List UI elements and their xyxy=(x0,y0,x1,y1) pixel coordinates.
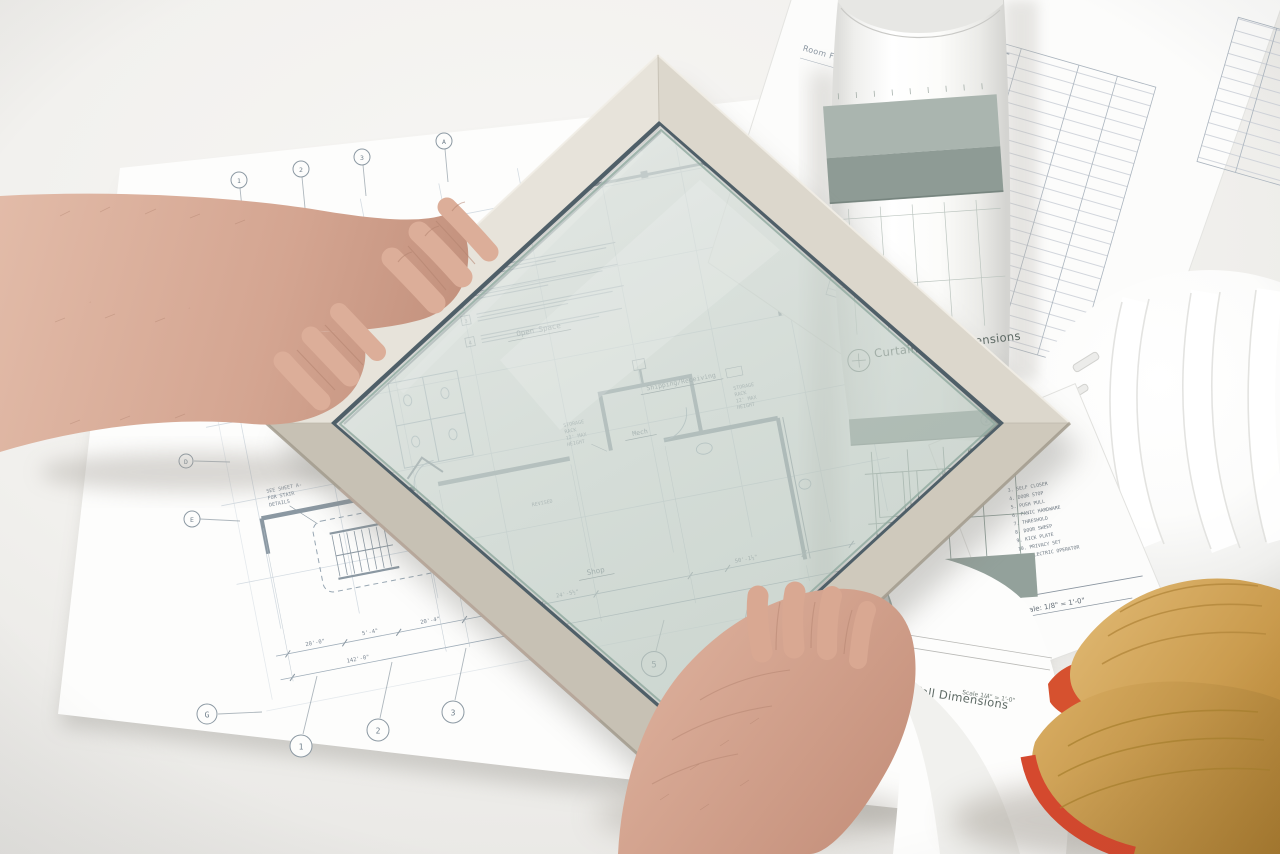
photo-canvas: Type Legend 1 2 3 4 Open Space Sh xyxy=(0,0,1280,854)
vignette xyxy=(0,0,1280,854)
construction-photo: Type Legend 1 2 3 4 Open Space Sh xyxy=(0,0,1280,854)
